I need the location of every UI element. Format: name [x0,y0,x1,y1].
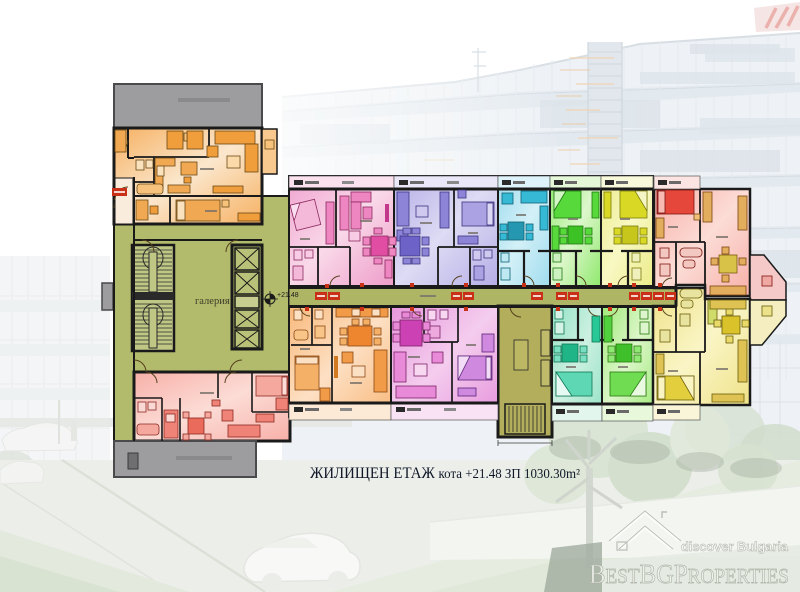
svg-text:discover Bulgaria: discover Bulgaria [681,540,789,554]
svg-text:ЖИЛИЩЕН ЕТАЖ кота +21.48: ЖИЛИЩЕН ЕТАЖ кота +21.48 ЗП 1030.30m² [310,465,580,482]
svg-text:+21.48: +21.48 [277,292,299,299]
svg-text:BESTBGPROPERTIES: BESTBGPROPERTIES [589,559,789,589]
svg-text:галерия: галерия [195,296,230,307]
